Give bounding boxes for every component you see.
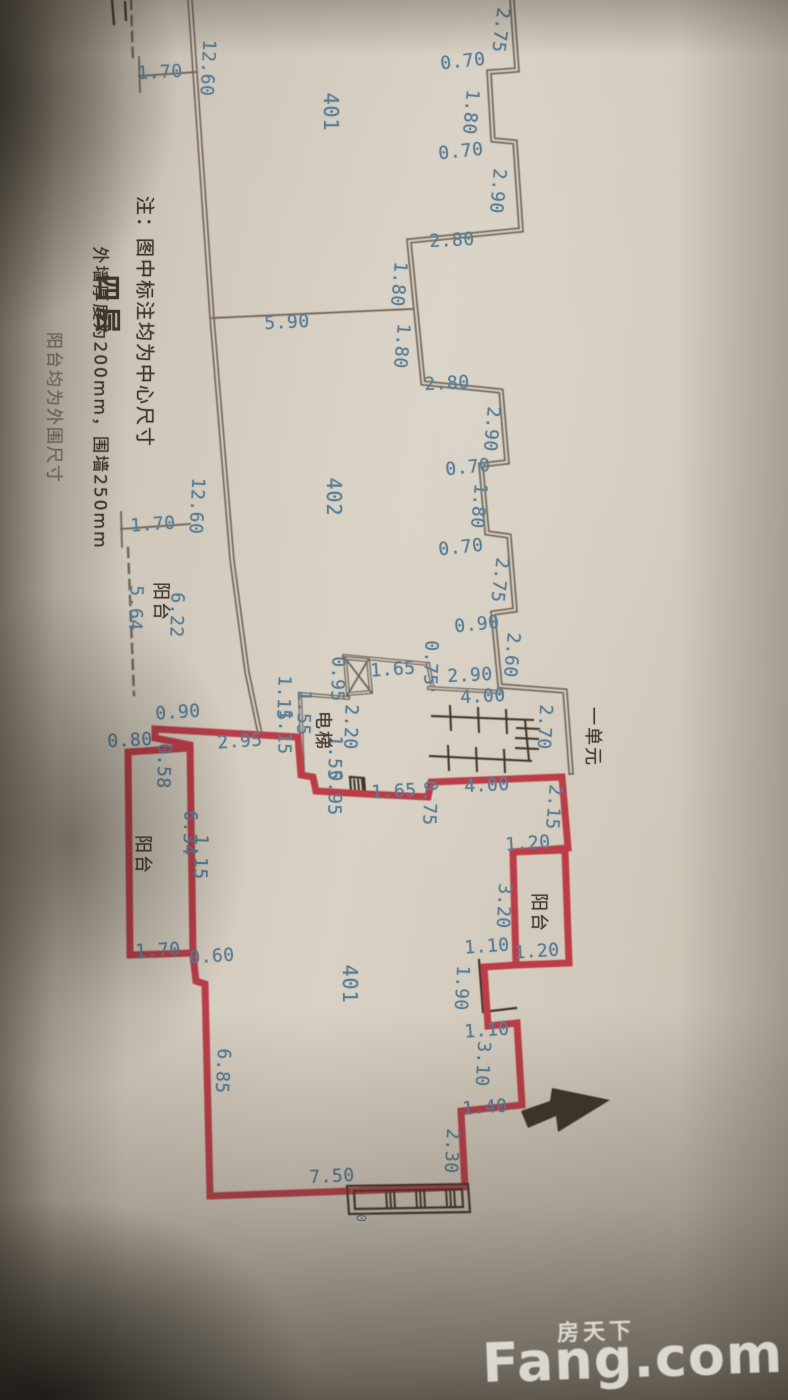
dim-label: 0.70 xyxy=(438,141,485,164)
dim-label: 0.70 xyxy=(445,457,492,480)
dim-label: 0.80 xyxy=(107,731,153,751)
dimension-labels-layer: 1.7012.604012.750.701.800.702.902.801.80… xyxy=(0,0,788,1400)
dim-label: 6.22 xyxy=(166,592,186,638)
dim-label: 4.00 xyxy=(460,687,506,707)
dim-label: 0.95 xyxy=(324,770,344,816)
room-label: 401 xyxy=(321,92,341,131)
dim-label: 2.90 xyxy=(447,666,493,686)
dim-label: 6.85 xyxy=(212,1048,232,1094)
text-label: 阳台 xyxy=(529,893,547,933)
text-label: 一单元 xyxy=(583,707,601,767)
dim-label: 1.10 xyxy=(464,936,511,957)
dim-label: 2.30 xyxy=(441,1128,461,1174)
dim-label: 2.95 xyxy=(217,731,264,752)
dim-label: 0.75 xyxy=(419,780,439,826)
dim-label: 1.80 xyxy=(390,323,412,370)
dim-label: 1.10 xyxy=(464,1020,511,1041)
dim-label: 0.75 xyxy=(420,640,440,686)
fang-watermark-chinese: 房天下 xyxy=(556,1313,635,1348)
dim-label: 5.90 xyxy=(264,313,310,333)
dim-label: 1.70 xyxy=(135,941,181,961)
dim-label: 1.65 xyxy=(370,659,417,680)
room-label: 401 xyxy=(340,964,360,1003)
text-label: 阳台 xyxy=(133,835,151,875)
dim-label: 1.80 xyxy=(467,483,489,530)
dim-label: 4.00 xyxy=(464,776,510,796)
dim-label: 2.15 xyxy=(542,784,564,831)
dim-label: 2.75 xyxy=(488,6,511,53)
dim-label: 0.70 xyxy=(438,537,485,560)
dim-label: 1.20 xyxy=(505,833,552,854)
room-label: 402 xyxy=(324,477,344,516)
dim-label: 1.15 xyxy=(274,709,294,755)
dim-label: 2.90 xyxy=(480,406,502,453)
dim-label: 0.70 xyxy=(440,51,487,74)
dim-label: 0 xyxy=(354,1214,367,1222)
dim-label: 0.60 xyxy=(189,946,236,967)
text-label: 电梯 xyxy=(313,711,331,751)
dim-label: 1.20 xyxy=(514,941,561,962)
dim-label: 0.90 xyxy=(155,702,202,723)
dim-label: 0.90 xyxy=(454,614,501,637)
fang-watermark: 房天下 Fang.com xyxy=(481,1322,784,1395)
dim-label: 5.64 xyxy=(125,585,145,631)
note-line-3: 阳台均为外围尺寸 xyxy=(44,332,69,484)
dim-label: 12.60 xyxy=(186,477,207,535)
dim-label: 1.70 xyxy=(130,514,177,535)
dim-label: 1.15 xyxy=(190,834,210,880)
dim-label: 1.40 xyxy=(462,1097,509,1118)
floor-label: 四层 xyxy=(91,275,128,339)
dim-label: 1.80 xyxy=(459,89,481,136)
dim-label: 1.90 xyxy=(451,965,471,1011)
dim-label: 2.70 xyxy=(534,704,554,750)
dim-label: 7.50 xyxy=(309,1167,355,1187)
dim-label: 0.58 xyxy=(153,743,173,789)
dim-label: 2.60 xyxy=(500,632,522,679)
dim-label: 2.90 xyxy=(486,168,508,215)
dim-label: 3.20 xyxy=(493,883,513,929)
dim-label: 2.80 xyxy=(424,374,470,394)
dim-label: 3.10 xyxy=(472,1041,492,1087)
dim-label: 2.75 xyxy=(487,556,510,603)
floorplan-photo: 1.7012.604012.750.701.800.702.902.801.80… xyxy=(0,0,788,1400)
dim-label: 2.80 xyxy=(429,231,475,251)
dim-label: 1.55 xyxy=(293,690,313,736)
note-line-1: 注：图中标注均为中心尺寸 xyxy=(133,196,160,448)
dim-label: 12.60 xyxy=(197,39,218,97)
dim-label: 0.95 xyxy=(327,656,347,702)
dim-label: 1.70 xyxy=(137,63,183,83)
dim-label: 1.65 xyxy=(371,782,417,802)
dim-label: 1.80 xyxy=(387,261,409,308)
